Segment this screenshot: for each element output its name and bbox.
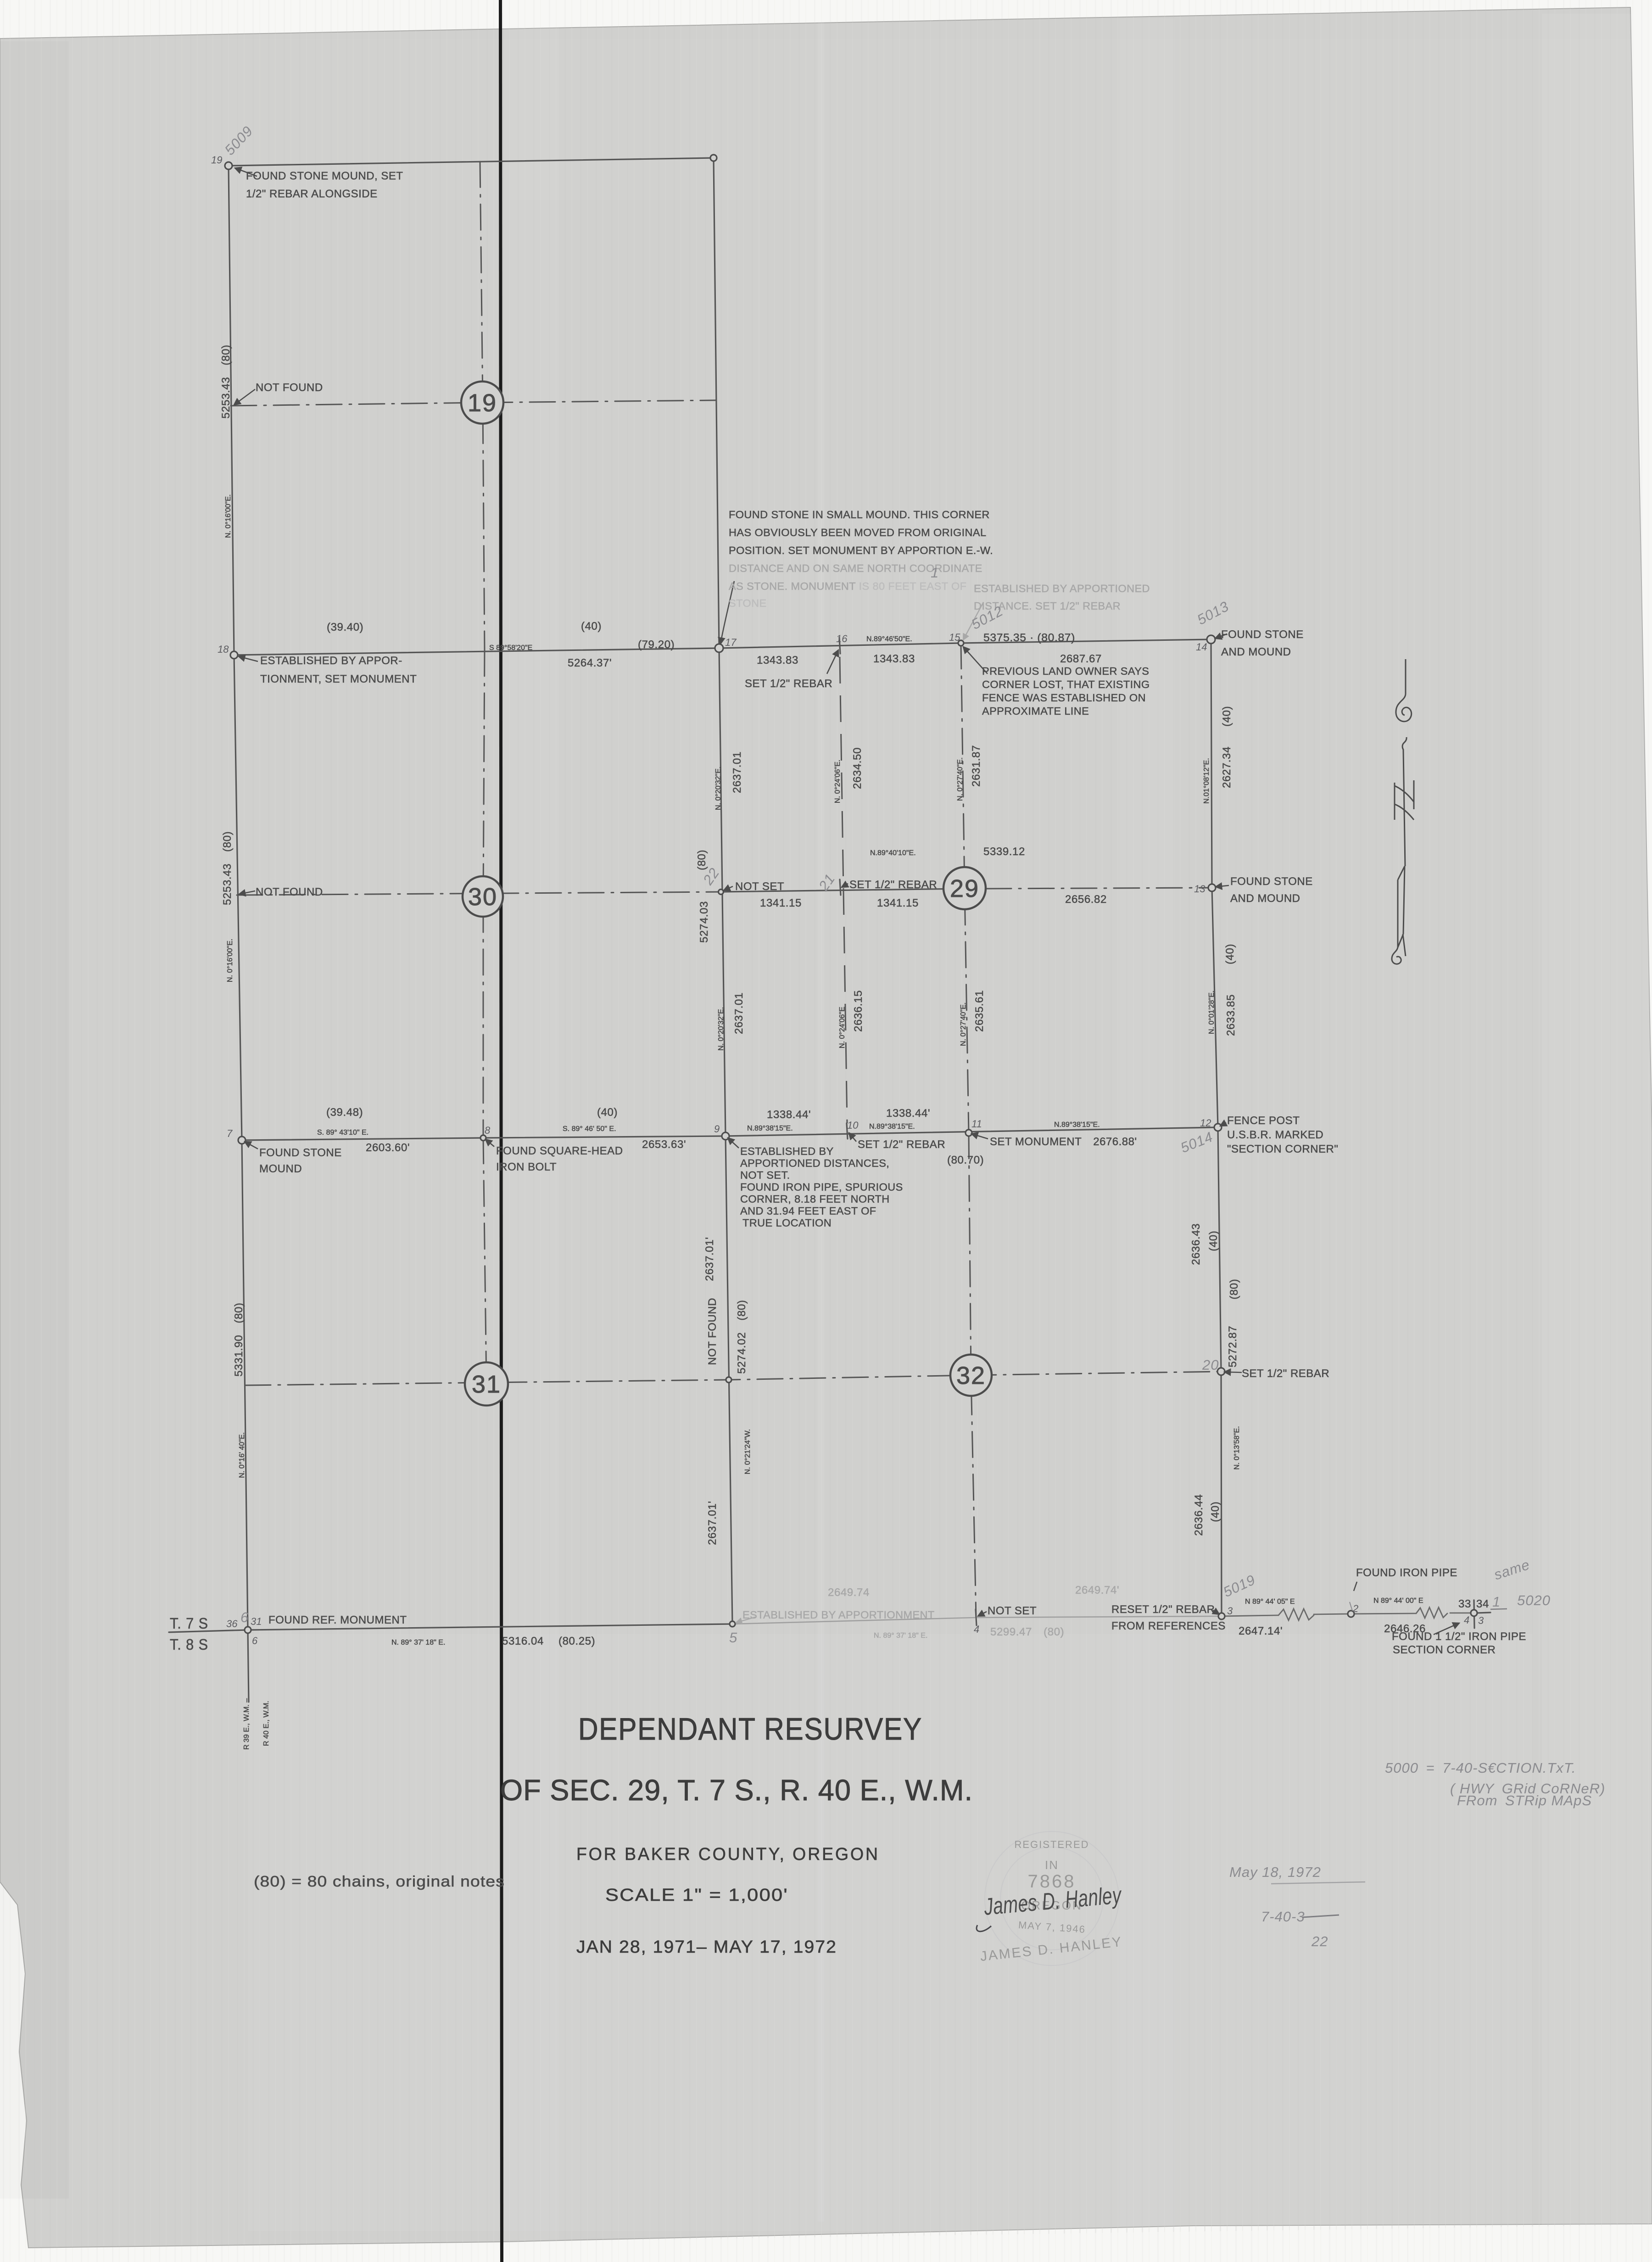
svg-text:SET 1/2" REBAR: SET 1/2" REBAR <box>1242 1367 1329 1380</box>
svg-text:FENCE POST: FENCE POST <box>1227 1114 1300 1127</box>
svg-text:FOUND 1 1/2" IRON PIPE: FOUND 1 1/2" IRON PIPE <box>1392 1630 1526 1643</box>
svg-text:2649.74: 2649.74 <box>828 1586 870 1599</box>
svg-text:(40): (40) <box>1221 706 1233 727</box>
svg-text:(40): (40) <box>1224 944 1236 964</box>
svg-text:17: 17 <box>725 637 737 648</box>
svg-text:RESET 1/2" REBAR: RESET 1/2" REBAR <box>1111 1603 1215 1616</box>
svg-text:(80.70): (80.70) <box>947 1154 984 1166</box>
svg-text:1: 1 <box>931 565 939 581</box>
svg-text:APPROXIMATE LINE: APPROXIMATE LINE <box>982 705 1089 717</box>
svg-text:ESTABLISHED BY APPORTIONED: ESTABLISHED BY APPORTIONED <box>974 582 1150 594</box>
svg-text:7-40-3: 7-40-3 <box>1261 1909 1305 1925</box>
svg-text:16: 16 <box>836 633 848 644</box>
svg-text:N. 89° 37' 18" E.: N. 89° 37' 18" E. <box>391 1639 445 1646</box>
svg-text:1338.44': 1338.44' <box>886 1107 930 1120</box>
svg-text:DISTANCE AND ON SAME NORTH COO: DISTANCE AND ON SAME NORTH COORDINATE <box>729 562 982 574</box>
svg-text:FOUND SQUARE-HEAD: FOUND SQUARE-HEAD <box>496 1145 623 1157</box>
svg-text:1343.83: 1343.83 <box>873 653 915 665</box>
svg-text:34: 34 <box>1476 1598 1489 1610</box>
svg-text:N 89° 44' 05" E: N 89° 44' 05" E <box>1245 1598 1295 1606</box>
svg-text:2637.01: 2637.01 <box>733 992 745 1034</box>
svg-text:2636.15: 2636.15 <box>852 990 865 1032</box>
svg-text:N 89° 44' 00" E: N 89° 44' 00" E <box>1373 1597 1423 1605</box>
svg-text:OF SEC. 29, T. 7 S., R. 40 E: OF SEC. 29, T. 7 S., R. 40 E., W.M. <box>500 1774 973 1807</box>
svg-text:4: 4 <box>974 1624 979 1635</box>
svg-text:DEPENDANT RESURVEY: DEPENDANT RESURVEY <box>578 1712 922 1747</box>
svg-text:N. 0°21'24"W.: N. 0°21'24"W. <box>744 1429 752 1474</box>
svg-text:2635.61: 2635.61 <box>973 990 986 1032</box>
svg-text:3: 3 <box>1478 1615 1484 1626</box>
svg-text:1341.15: 1341.15 <box>877 897 919 909</box>
svg-text:5000 = 7-40-S€CTION.TxT.: 5000 = 7-40-S€CTION.TxT. <box>1385 1760 1576 1776</box>
svg-text:32: 32 <box>956 1362 986 1389</box>
svg-text:IN: IN <box>1045 1858 1059 1872</box>
svg-text:(40): (40) <box>581 620 602 633</box>
svg-text:FOUND STONE: FOUND STONE <box>259 1147 342 1159</box>
svg-text:19: 19 <box>468 389 497 417</box>
svg-text:N. 0°27'40"E.: N. 0°27'40"E. <box>956 757 964 801</box>
svg-text:JAN 28, 1971– MAY 17, 1972: JAN 28, 1971– MAY 17, 1972 <box>576 1937 837 1957</box>
svg-text:PREVIOUS LAND OWNER SAYS: PREVIOUS LAND OWNER SAYS <box>982 665 1149 677</box>
svg-text:(80) = 80 chains, original not: (80) = 80 chains, original notes <box>254 1873 505 1890</box>
svg-text:19: 19 <box>211 154 222 166</box>
svg-text:5272.87: 5272.87 <box>1227 1326 1239 1367</box>
svg-text:6: 6 <box>252 1635 258 1646</box>
svg-text:14: 14 <box>1196 641 1207 653</box>
svg-text:SET MONUMENT 2676.88': SET MONUMENT 2676.88' <box>990 1136 1137 1148</box>
svg-text:N.01°08'12"E.: N.01°08'12"E. <box>1203 758 1211 804</box>
svg-text:N. 0°27'40"E.: N. 0°27'40"E. <box>960 1002 967 1046</box>
svg-text:TIONMENT, SET MONUMENT: TIONMENT, SET MONUMENT <box>260 673 417 685</box>
svg-text:2656.82: 2656.82 <box>1065 893 1107 906</box>
svg-text:2687.67: 2687.67 <box>1060 653 1102 665</box>
svg-text:12: 12 <box>1200 1117 1211 1129</box>
svg-text:SET 1/2" REBAR: SET 1/2" REBAR <box>745 677 832 690</box>
svg-text:TRUE LOCATION: TRUE LOCATION <box>742 1217 832 1229</box>
svg-text:N. 0°20'32"E.: N. 0°20'32"E. <box>717 1007 725 1051</box>
svg-text:AS STONE. MONUMENT IS 80 FEET: AS STONE. MONUMENT IS 80 FEET EAST OF <box>729 580 966 592</box>
svg-text:33: 33 <box>1458 1598 1471 1610</box>
svg-text:1343.83: 1343.83 <box>757 654 798 666</box>
svg-text:POSITION. SET MONUMENT BY APP: POSITION. SET MONUMENT BY APPORTION E.-W… <box>729 544 993 556</box>
svg-text:31: 31 <box>251 1616 262 1627</box>
svg-text:(40): (40) <box>597 1106 618 1119</box>
svg-text:4: 4 <box>1464 1614 1469 1626</box>
svg-text:R 39 E., W.M. –: R 39 E., W.M. – <box>243 1698 251 1750</box>
svg-text:NOT FOUND: NOT FOUND <box>256 381 323 394</box>
svg-text:S. 89° 46' 50" E.: S. 89° 46' 50" E. <box>563 1125 616 1133</box>
svg-text:5264.37': 5264.37' <box>568 657 612 669</box>
svg-text:2653.63': 2653.63' <box>642 1138 686 1151</box>
svg-text:ESTABLISHED BY APPOR-: ESTABLISHED BY APPOR- <box>260 655 402 667</box>
svg-text:FOUND IRON PIPE, SPURIOUS: FOUND IRON PIPE, SPURIOUS <box>740 1181 903 1193</box>
svg-text:S. 89° 43'10" E.: S. 89° 43'10" E. <box>317 1129 368 1137</box>
svg-text:SECTION CORNER: SECTION CORNER <box>1393 1644 1496 1656</box>
svg-text:36: 36 <box>226 1618 238 1629</box>
svg-text:22: 22 <box>1311 1933 1328 1949</box>
svg-text:May 18, 1972: May 18, 1972 <box>1229 1864 1321 1880</box>
svg-text:FRom STRip MApS: FRom STRip MApS <box>1457 1792 1592 1808</box>
svg-text:FROM REFERENCES: FROM REFERENCES <box>1111 1620 1226 1632</box>
svg-text:(40): (40) <box>1207 1231 1220 1251</box>
svg-text:(80): (80) <box>1228 1279 1240 1299</box>
svg-text:7: 7 <box>227 1128 233 1139</box>
svg-text:N. 0°24'06"E: N. 0°24'06"E <box>838 1007 846 1048</box>
svg-text:FENCE WAS ESTABLISHED ON: FENCE WAS ESTABLISHED ON <box>982 692 1146 704</box>
svg-text:5274.02 (80): 5274.02 (80) <box>736 1300 748 1374</box>
svg-text:N. 0°20'32"E.: N. 0°20'32"E. <box>714 767 722 810</box>
svg-text:5375.35 · (80.87): 5375.35 · (80.87) <box>983 632 1075 644</box>
svg-text:N. 0°24'06"E.: N. 0°24'06"E. <box>834 760 842 803</box>
svg-text:FOUND STONE: FOUND STONE <box>1230 875 1313 888</box>
svg-text:ESTABLISHED BY APPORTIONMENT: ESTABLISHED BY APPORTIONMENT <box>742 1609 935 1621</box>
svg-text:2: 2 <box>1352 1603 1358 1614</box>
svg-text:N.89°38'15"E.: N.89°38'15"E. <box>1054 1121 1100 1129</box>
svg-text:20: 20 <box>1202 1357 1219 1373</box>
svg-text:NOT SET: NOT SET <box>988 1605 1037 1617</box>
svg-text:N. 0°13'58"E.: N. 0°13'58"E. <box>1233 1426 1241 1470</box>
svg-text:N. 0°16'00"E.: N. 0°16'00"E. <box>224 494 232 538</box>
svg-text:5316.04: 5316.04 <box>502 1635 544 1647</box>
svg-text:S 89°58'20"E: S 89°58'20"E <box>489 644 532 652</box>
svg-text:31: 31 <box>472 1371 501 1398</box>
svg-text:N. 89° 37' 18" E.: N. 89° 37' 18" E. <box>874 1632 927 1640</box>
svg-text:T. 7 S: T. 7 S <box>170 1615 208 1632</box>
svg-text:MOUND: MOUND <box>259 1163 302 1175</box>
svg-text:1/2" REBAR ALONGSIDE: 1/2" REBAR ALONGSIDE <box>246 188 378 200</box>
svg-text:AND MOUND: AND MOUND <box>1221 646 1291 658</box>
svg-text:5020: 5020 <box>1517 1592 1551 1608</box>
svg-text:5299.47 (80): 5299.47 (80) <box>990 1626 1064 1638</box>
svg-text:HAS OBVIOUSLY BEEN MOVED FROM: HAS OBVIOUSLY BEEN MOVED FROM ORIGINAL <box>729 526 986 538</box>
svg-text:5: 5 <box>729 1629 737 1646</box>
svg-text:T. 8 S: T. 8 S <box>170 1636 208 1653</box>
svg-text:N. 0°01'28"E.: N. 0°01'28"E. <box>1208 991 1216 1034</box>
svg-text:CORNER, 8.18 FEET NORTH: CORNER, 8.18 FEET NORTH <box>740 1193 890 1205</box>
svg-text:9: 9 <box>714 1123 720 1135</box>
svg-text:SET 1/2" REBAR: SET 1/2" REBAR <box>858 1138 945 1151</box>
svg-text:REGISTERED: REGISTERED <box>1014 1839 1089 1850</box>
svg-text:(39.48): (39.48) <box>326 1106 363 1119</box>
svg-text:2647.14': 2647.14' <box>1239 1625 1283 1637</box>
svg-text:13: 13 <box>1194 883 1206 895</box>
svg-text:29: 29 <box>950 875 979 902</box>
svg-text:FOUND REF. MONUMENT: FOUND REF. MONUMENT <box>268 1614 407 1626</box>
svg-text:2636.44: 2636.44 <box>1193 1494 1205 1536</box>
svg-text:NOT FOUND: NOT FOUND <box>706 1298 719 1365</box>
svg-text:(40): (40) <box>1209 1501 1222 1522</box>
svg-text:NOT SET.: NOT SET. <box>740 1169 790 1181</box>
svg-text:IRON BOLT: IRON BOLT <box>496 1161 557 1173</box>
svg-text:10: 10 <box>847 1120 859 1131</box>
svg-text:STONE: STONE <box>729 597 767 609</box>
svg-text:NOT SET: NOT SET <box>735 880 784 893</box>
svg-text:18: 18 <box>218 644 229 655</box>
svg-text:N. 0°16'00"E.: N. 0°16'00"E. <box>226 939 234 982</box>
svg-text:1: 1 <box>1492 1594 1501 1610</box>
svg-text:SCALE 1" = 1,000': SCALE 1" = 1,000' <box>605 1886 788 1905</box>
svg-text:1338.44': 1338.44' <box>767 1109 811 1121</box>
svg-text:2627.34: 2627.34 <box>1221 746 1233 788</box>
svg-text:5253.43 (80): 5253.43 (80) <box>221 831 234 905</box>
svg-text:CORNER LOST, THAT EXISTING: CORNER LOST, THAT EXISTING <box>982 678 1150 690</box>
svg-text:5339.12: 5339.12 <box>983 845 1025 858</box>
svg-text:"SECTION CORNER": "SECTION CORNER" <box>1227 1143 1338 1155</box>
svg-text:2637.01: 2637.01 <box>731 751 743 793</box>
svg-text:15: 15 <box>949 632 960 643</box>
svg-text:2634.50: 2634.50 <box>851 747 864 789</box>
svg-text:5331.90 (80): 5331.90 (80) <box>233 1303 245 1377</box>
svg-text:ESTABLISHED BY: ESTABLISHED BY <box>740 1145 834 1157</box>
svg-text:N.89°46'50"E.: N.89°46'50"E. <box>866 635 912 643</box>
svg-text:2631.87: 2631.87 <box>970 745 982 787</box>
svg-text:(80): (80) <box>696 850 708 870</box>
svg-text:6: 6 <box>240 1609 249 1625</box>
svg-text:FOUND IRON PIPE: FOUND IRON PIPE <box>1356 1567 1457 1579</box>
svg-text:11: 11 <box>971 1118 982 1130</box>
svg-text:N. 0°16' 40"E.: N. 0°16' 40"E. <box>238 1432 246 1478</box>
svg-text:AND 31.94 FEET EAST OF: AND 31.94 FEET EAST OF <box>740 1205 876 1217</box>
svg-text:U.S.B.R. MARKED: U.S.B.R. MARKED <box>1227 1129 1323 1141</box>
svg-text:FOUND STONE: FOUND STONE <box>1221 628 1304 641</box>
svg-text:5253.43 (80): 5253.43 (80) <box>220 345 232 419</box>
svg-text:2649.74': 2649.74' <box>1075 1584 1119 1596</box>
svg-text:2637.01': 2637.01' <box>703 1237 716 1281</box>
svg-text:3: 3 <box>1227 1605 1233 1617</box>
svg-text:2603.60': 2603.60' <box>366 1142 410 1154</box>
svg-text:(80.25): (80.25) <box>558 1635 595 1647</box>
svg-text:FOUND STONE IN SMALL MOUND.: FOUND STONE IN SMALL MOUND. THIS CORNER <box>729 509 990 521</box>
svg-text:2633.85: 2633.85 <box>1225 994 1237 1036</box>
svg-text:APPORTIONED DISTANCES,: APPORTIONED DISTANCES, <box>740 1157 889 1169</box>
svg-text:N.89°38'15"E.: N.89°38'15"E. <box>747 1125 793 1132</box>
svg-text:FOUND STONE MOUND, SET: FOUND STONE MOUND, SET <box>246 170 403 182</box>
svg-text:N.89°38'15"E.: N.89°38'15"E. <box>869 1123 915 1131</box>
svg-text:(39.40): (39.40) <box>327 621 363 633</box>
svg-text:8: 8 <box>485 1125 491 1136</box>
svg-text:(79.20): (79.20) <box>638 638 675 651</box>
svg-text:R 40 E., W.M.: R 40 E., W.M. <box>262 1701 270 1746</box>
svg-text:AND MOUND: AND MOUND <box>1230 892 1300 905</box>
svg-text:FOR BAKER COUNTY, OREGON: FOR BAKER COUNTY, OREGON <box>576 1845 880 1864</box>
svg-text:30: 30 <box>468 883 497 911</box>
svg-text:2636.43: 2636.43 <box>1190 1223 1202 1265</box>
svg-text:N.89°40'10"E.: N.89°40'10"E. <box>870 849 916 857</box>
svg-text:2637.01': 2637.01' <box>706 1501 719 1545</box>
svg-text:1341.15: 1341.15 <box>760 897 802 909</box>
svg-text:5274.03: 5274.03 <box>698 901 710 943</box>
svg-text:SET 1/2" REBAR: SET 1/2" REBAR <box>849 879 937 891</box>
svg-text:NOT FOUND: NOT FOUND <box>256 886 323 898</box>
